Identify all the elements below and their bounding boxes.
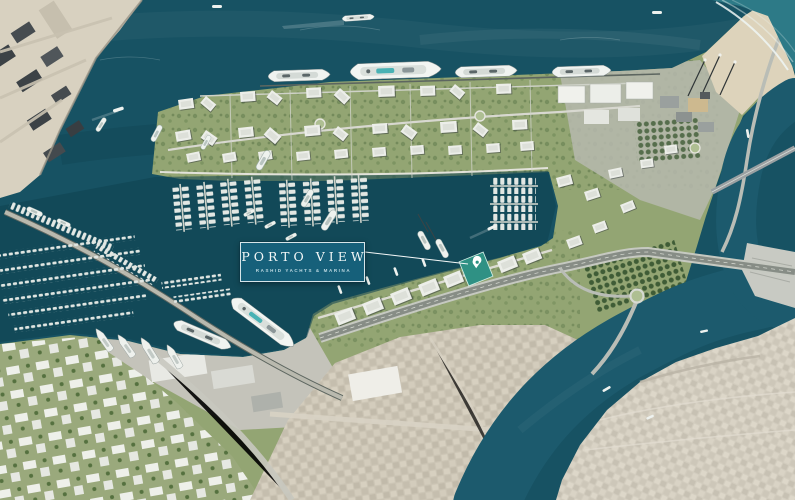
project-subtitle: RASHID YACHTS & MARINA xyxy=(256,269,351,274)
map-canvas xyxy=(0,0,795,500)
sand-stockpile xyxy=(688,98,708,112)
roundabout xyxy=(690,143,700,153)
roundabout xyxy=(631,290,644,303)
aerial-masterplan-render: PORTO VIEW RASHID YACHTS & MARINA xyxy=(0,0,795,500)
project-title: PORTO VIEW xyxy=(241,251,367,264)
project-label-box: PORTO VIEW RASHID YACHTS & MARINA xyxy=(240,242,365,282)
roundabout xyxy=(475,111,485,121)
